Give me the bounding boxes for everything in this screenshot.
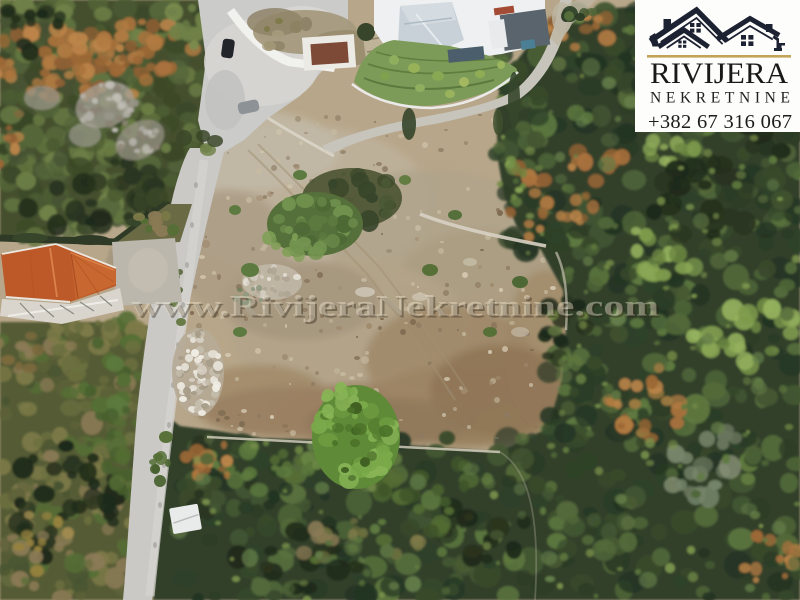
svg-text:NEKRETNINE: NEKRETNINE: [650, 90, 790, 107]
svg-text:www.RivijeraNekretnine.com: www.RivijeraNekretnine.com: [131, 290, 659, 323]
svg-text:RIVIJERA: RIVIJERA: [650, 57, 788, 90]
svg-text:+382 67 316 067: +382 67 316 067: [648, 111, 792, 133]
